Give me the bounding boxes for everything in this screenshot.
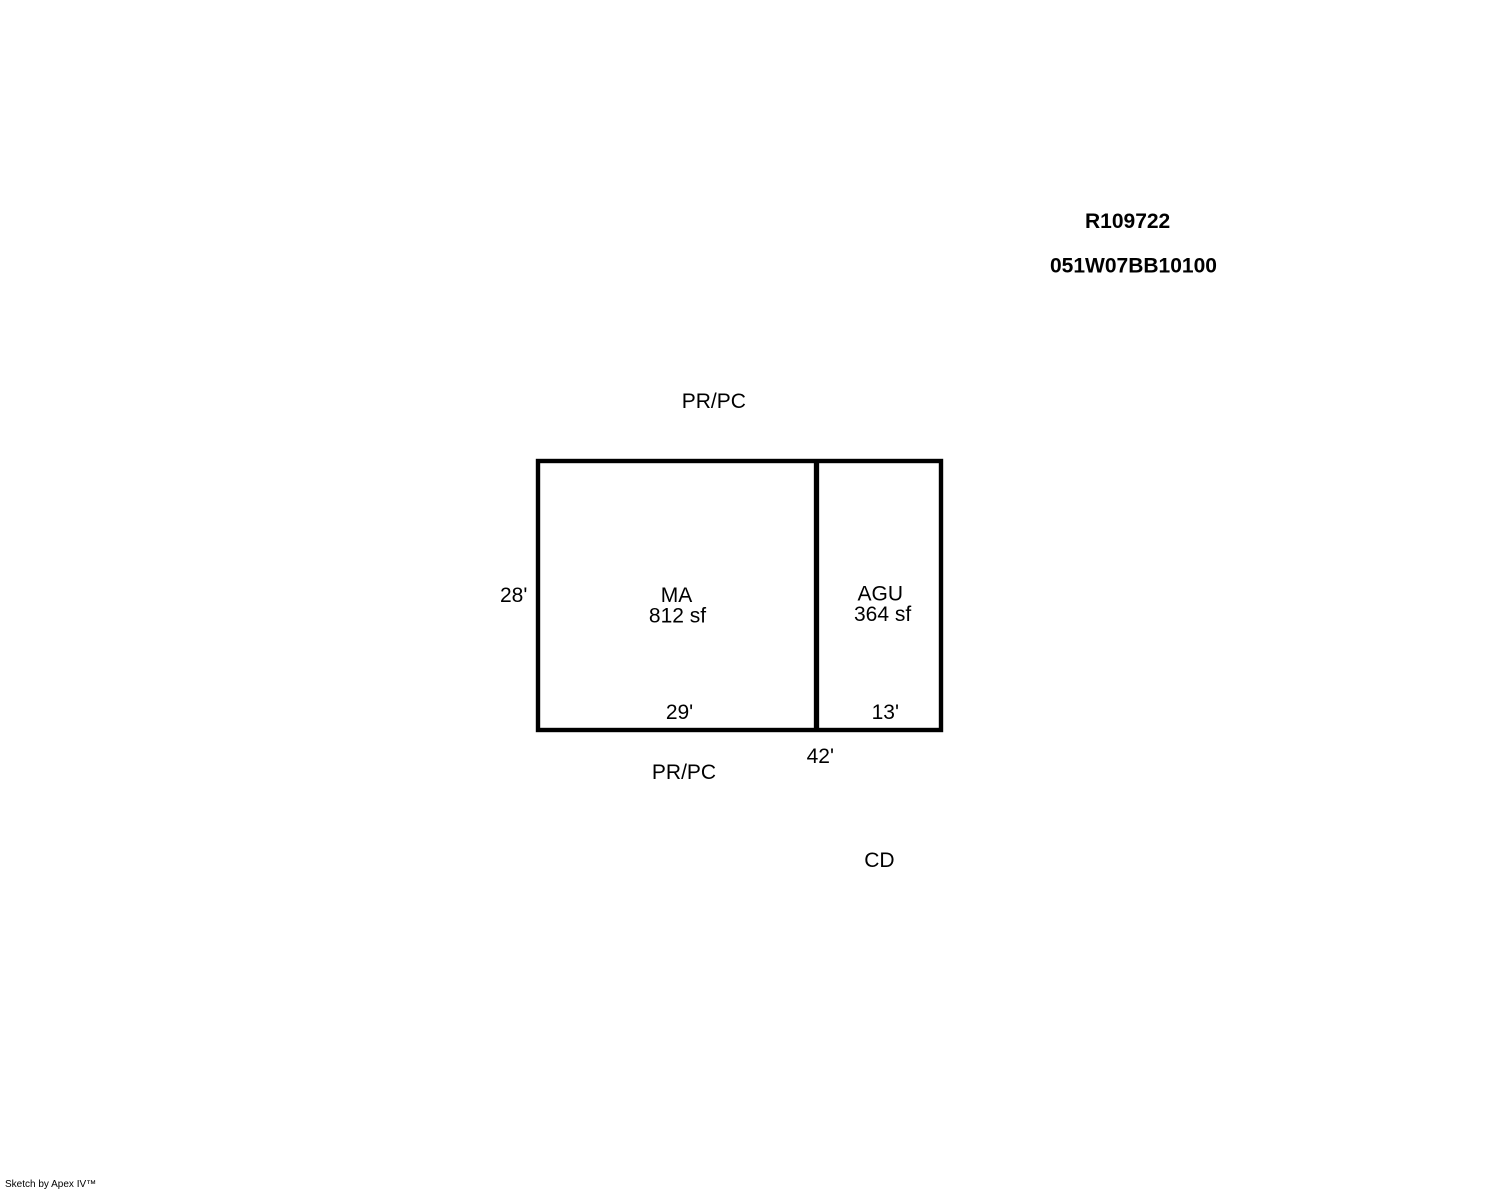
svg-text:28': 28'	[500, 584, 527, 607]
svg-text:PR/PC: PR/PC	[652, 761, 716, 784]
svg-text:PR/PC: PR/PC	[682, 390, 746, 413]
svg-text:Sketch by Apex IV™: Sketch by Apex IV™	[5, 1179, 96, 1190]
svg-text:MA: MA	[661, 584, 693, 607]
svg-text:42': 42'	[807, 745, 834, 768]
svg-text:29': 29'	[666, 701, 693, 724]
svg-text:13': 13'	[872, 701, 899, 724]
svg-text:CD: CD	[864, 849, 894, 872]
svg-text:051W07BB10100: 051W07BB10100	[1050, 254, 1217, 277]
svg-text:AGU: AGU	[858, 582, 904, 605]
svg-text:R109722: R109722	[1085, 210, 1170, 233]
svg-text:364 sf: 364 sf	[854, 603, 911, 626]
svg-text:812 sf: 812 sf	[649, 605, 706, 628]
